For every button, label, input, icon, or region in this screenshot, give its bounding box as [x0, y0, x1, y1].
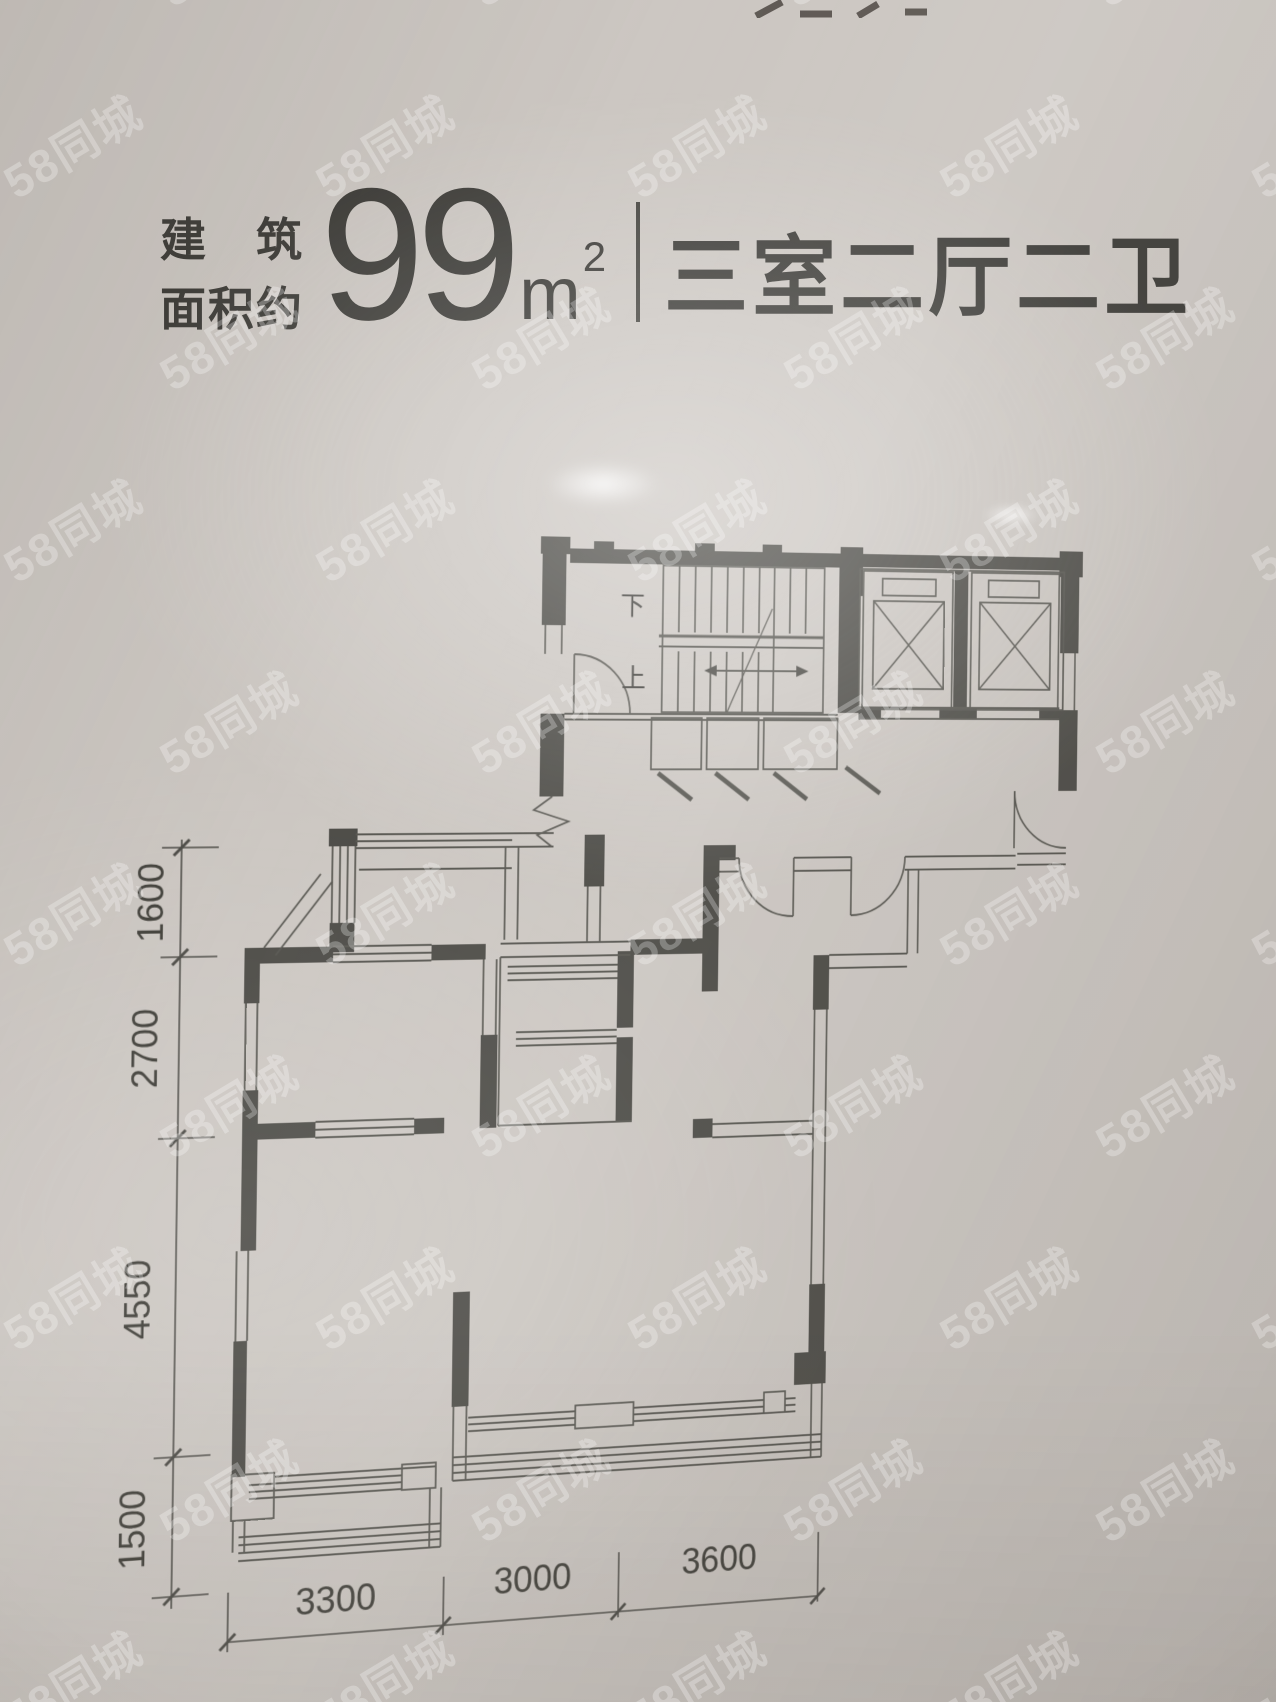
- entry-door: [1014, 791, 1067, 865]
- stair-up-label: 上: [621, 664, 646, 693]
- dim-left-1600: 1600: [130, 863, 171, 943]
- dim-bottom-3300: 3300: [295, 1577, 376, 1624]
- watermark-58tongcheng: 58同城: [1238, 846, 1276, 980]
- bathrooms: [498, 938, 816, 1145]
- area-figure: 99 m 2: [320, 168, 606, 341]
- watermark-58tongcheng: 58同城: [458, 0, 622, 20]
- header-divider: [636, 202, 640, 322]
- watermark-58tongcheng: 58同城: [770, 0, 934, 20]
- watermark-58tongcheng: 58同城: [1238, 78, 1276, 212]
- dim-left-4550: 4550: [117, 1259, 159, 1341]
- watermark-58tongcheng: 58同城: [1238, 1614, 1276, 1702]
- area-unit: m: [519, 251, 581, 336]
- area-label-line1: 建筑: [160, 206, 302, 275]
- wall-break-symbol: [533, 796, 569, 846]
- dim-bottom-3600: 3600: [681, 1537, 757, 1582]
- floor-plan-photo: 下 上: [0, 0, 1276, 1702]
- dim-left-2700: 2700: [124, 1008, 166, 1089]
- foyer: [718, 856, 1015, 971]
- terrace: [452, 1383, 822, 1480]
- balcony: [230, 1462, 441, 1562]
- dim-bottom-3000: 3000: [493, 1557, 571, 1603]
- area-label: 建筑 面积约: [160, 206, 302, 344]
- service-shafts: [563, 714, 881, 801]
- stair-down-label: 下: [620, 591, 645, 620]
- stair-core: 下 上: [533, 536, 1083, 870]
- area-label-line2: 面积约: [160, 275, 302, 344]
- watermark-58tongcheng: 58同城: [1238, 462, 1276, 596]
- dim-left-1500: 1500: [112, 1488, 154, 1571]
- layout-title: 三室二厅二卫: [664, 208, 1192, 334]
- plan-header: 建筑 面积约 99 m 2 三室二厅二卫: [160, 168, 1192, 344]
- staircase: [658, 565, 825, 712]
- area-unit-exponent: 2: [583, 233, 606, 281]
- watermark-58tongcheng: 58同城: [1082, 0, 1246, 20]
- watermark-58tongcheng: 58同城: [1238, 1230, 1276, 1364]
- bedroom1-bay-window: [264, 833, 554, 956]
- area-value: 99: [320, 168, 513, 341]
- apartment-unit: [230, 824, 1016, 1561]
- cropped-text-fragment: [740, 0, 1040, 18]
